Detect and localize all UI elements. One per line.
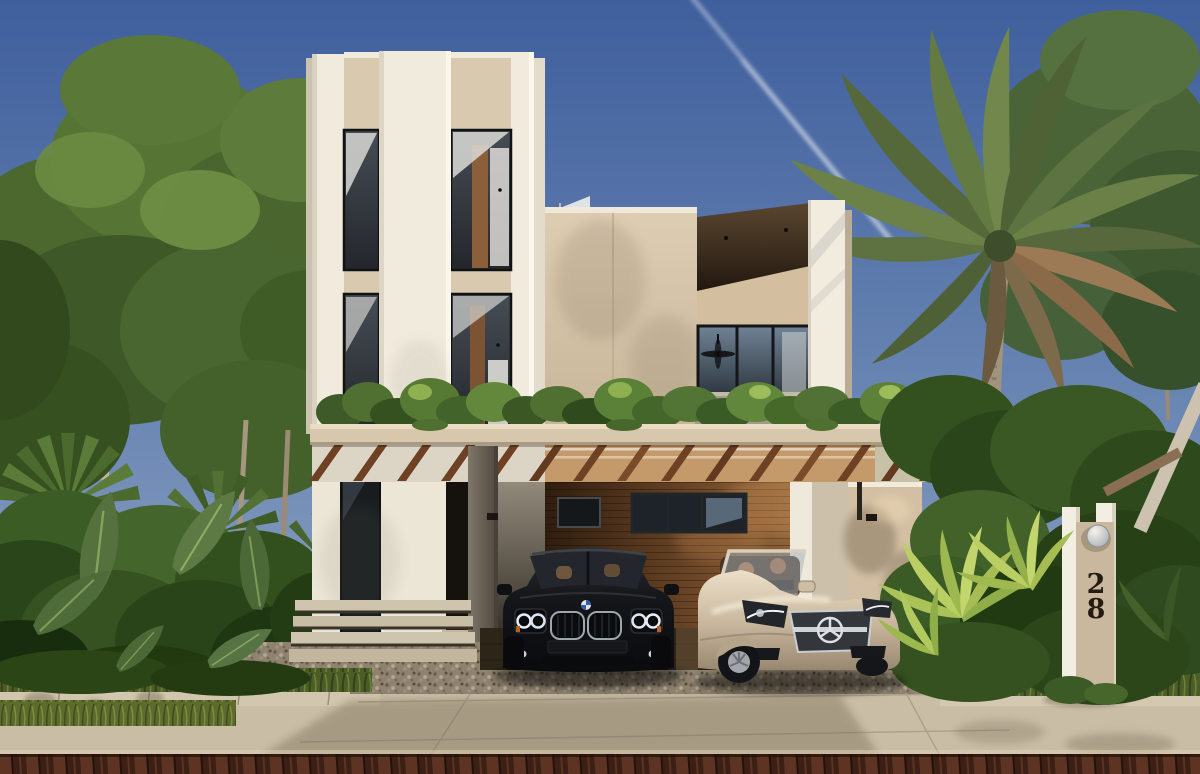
bmw-mirror-left	[497, 584, 512, 595]
mercedes-mirror	[798, 581, 815, 592]
clerestory-window-right	[632, 494, 746, 532]
tree-shadow-on-driveway	[260, 696, 880, 756]
tower-window-upper-right	[451, 130, 511, 270]
tower-window-upper-left	[344, 130, 379, 270]
bmw-headlight-left	[515, 609, 546, 633]
right-understory	[880, 375, 1200, 705]
clerestory-window-left	[558, 498, 600, 527]
pergola-beams	[309, 443, 968, 482]
bmw-plate-recess	[548, 641, 627, 653]
curb-shadow	[0, 754, 1200, 757]
bmw-mirror-right	[664, 584, 679, 595]
mercedes-grille	[790, 610, 872, 652]
address-number-8: 8	[1087, 594, 1106, 625]
bmw-headlight-right	[631, 609, 662, 633]
architectural-render: 2 8	[0, 0, 1200, 774]
tower	[306, 51, 545, 434]
grass-strip-lower-left	[0, 700, 236, 726]
render-canvas: 2 8	[0, 0, 1200, 774]
